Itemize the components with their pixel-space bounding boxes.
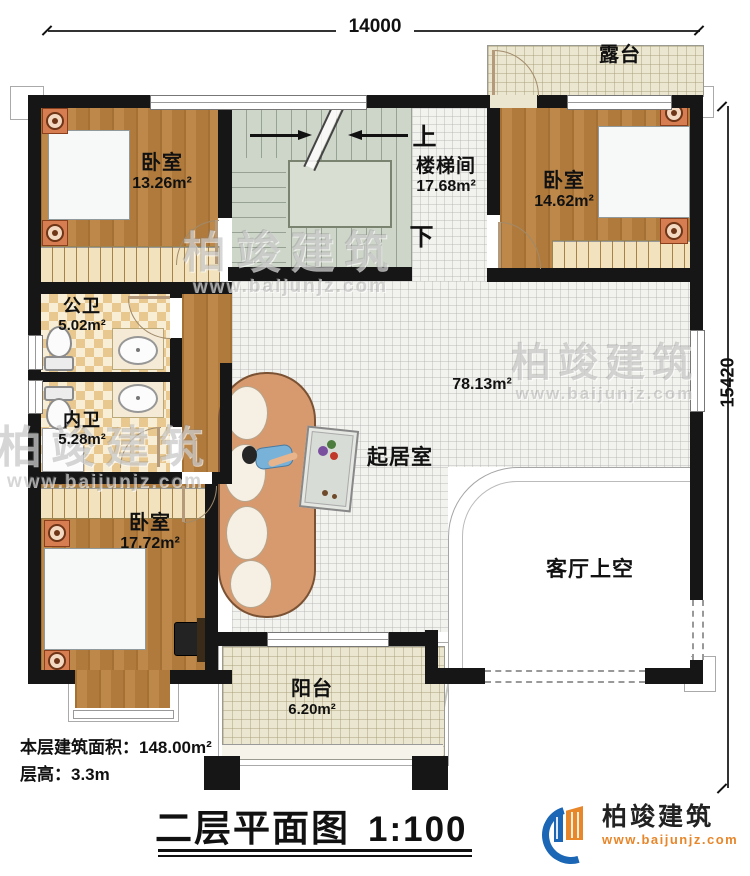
window xyxy=(690,330,705,412)
room-label-bedroom-tl: 卧室 13.26m² xyxy=(112,152,212,193)
wall-segment xyxy=(170,338,182,427)
floor-plan: 14000 15420 露台 xyxy=(0,0,750,876)
wall-segment xyxy=(220,363,232,472)
door-leaf xyxy=(498,222,501,268)
dimension-tick xyxy=(717,101,728,112)
floor-height-label: 层高： xyxy=(20,765,71,784)
living-area-label: 78.13m² xyxy=(440,376,524,394)
sofa-cushion xyxy=(226,506,268,560)
dimension-line-right xyxy=(727,106,729,788)
brand-logo-icon xyxy=(540,798,596,858)
sink-icon xyxy=(118,336,158,365)
stair-arrow-icon xyxy=(298,130,312,140)
title-underline xyxy=(158,855,472,857)
person-head xyxy=(242,446,257,464)
room-label-bath-public: 公卫 5.02m² xyxy=(42,296,122,334)
stair-arrow-icon xyxy=(348,130,362,140)
room-label-bedroom-tr: 卧室 14.62m² xyxy=(514,170,614,211)
wall-segment xyxy=(28,95,41,335)
logo-window-slit xyxy=(571,812,573,838)
room-label-terrace: 露台 xyxy=(580,44,660,67)
wall-segment xyxy=(28,282,232,294)
room-name: 卧室 xyxy=(514,170,614,193)
bay-window-floor xyxy=(75,670,170,708)
flower-icon xyxy=(318,446,328,456)
stair-down-label: 下 xyxy=(405,224,439,252)
bed-double-icon xyxy=(44,548,146,650)
room-area: 5.02m² xyxy=(42,317,122,334)
floor-area-value: 148.00m² xyxy=(139,738,212,757)
coffee-table-icon xyxy=(299,426,359,513)
balcony-column xyxy=(204,756,240,790)
room-name: 公卫 xyxy=(42,296,122,317)
room-area: 13.26m² xyxy=(112,175,212,193)
room-name: 楼梯间 xyxy=(398,156,494,178)
window-sliding xyxy=(692,600,704,660)
dimension-top-label: 14000 xyxy=(336,16,414,38)
floor-height-note: 层高：3.3m xyxy=(20,760,110,785)
room-area: 5.28m² xyxy=(42,431,122,448)
room-area: 17.72m² xyxy=(100,535,200,553)
dimension-right-label: 15420 xyxy=(718,343,739,423)
wall-segment xyxy=(28,95,150,108)
wall-segment xyxy=(387,632,425,646)
toilet-tank xyxy=(44,356,74,371)
nightstand-icon xyxy=(42,220,68,246)
wall-segment xyxy=(228,267,412,281)
balcony-column xyxy=(412,756,448,790)
wall-segment xyxy=(218,632,267,646)
wardrobe-icon xyxy=(552,240,692,270)
nightstand-icon xyxy=(660,218,688,244)
wall-segment xyxy=(28,472,182,484)
stair-up-label: 上 xyxy=(408,124,442,152)
wall-segment xyxy=(170,670,232,684)
room-label-living: 起居室 xyxy=(352,446,448,470)
stair-return-flight xyxy=(232,158,286,267)
floor-area-note: 本层建筑面积：148.00m² xyxy=(20,733,212,758)
room-label-balcony: 阳台 6.20m² xyxy=(260,678,364,718)
sofa-cushion xyxy=(226,386,268,440)
logo-window-slit xyxy=(556,817,558,839)
terrace-door-gap xyxy=(490,95,537,108)
window xyxy=(28,380,43,414)
wall-segment xyxy=(537,95,567,108)
wall-segment xyxy=(218,108,232,218)
room-name: 卧室 xyxy=(100,512,200,535)
room-name: 阳台 xyxy=(260,678,364,701)
door-leaf xyxy=(215,220,218,264)
nightstand-icon xyxy=(44,650,70,672)
nightstand-icon xyxy=(42,108,68,134)
room-label-void: 客厅上空 xyxy=(525,558,655,582)
drawing-title: 二层平面图1:100 xyxy=(155,798,468,852)
balcony-rail xyxy=(222,744,443,759)
window xyxy=(567,95,672,110)
wall-segment xyxy=(28,670,75,684)
wall-segment xyxy=(170,282,182,298)
wall-segment xyxy=(425,668,485,684)
floor-area-label: 本层建筑面积： xyxy=(20,738,139,757)
brand-name: 柏竣建筑 xyxy=(602,804,738,832)
window-sliding xyxy=(485,670,645,683)
terrace-door-leaf xyxy=(492,50,495,95)
wall-segment xyxy=(690,410,703,600)
drawing-title-text: 二层平面图 xyxy=(155,808,350,849)
brand-text: 柏竣建筑 www.baijunjz.com xyxy=(602,804,738,847)
wall-segment xyxy=(487,268,702,282)
sofa-cushion xyxy=(230,560,272,608)
window xyxy=(150,95,367,110)
stair-landing xyxy=(288,160,392,228)
table-dot xyxy=(322,490,328,496)
room-name: 内卫 xyxy=(42,410,122,431)
sink-icon xyxy=(118,384,158,413)
drawing-scale: 1:100 xyxy=(368,810,468,849)
stair-direction-line xyxy=(250,134,298,137)
wall-segment xyxy=(645,668,702,684)
table-dot xyxy=(332,494,337,499)
stair-direction-line xyxy=(362,134,408,137)
room-label-bedroom-bl: 卧室 17.72m² xyxy=(100,512,200,553)
nightstand-icon xyxy=(44,520,70,547)
floor-height-value: 3.3m xyxy=(71,765,110,784)
brand-logo: 柏竣建筑 www.baijunjz.com xyxy=(540,796,748,864)
wall-segment xyxy=(212,472,232,484)
room-label-stairwell: 楼梯间 17.68m² xyxy=(398,156,494,196)
room-area: 17.68m² xyxy=(398,178,494,196)
tv-stand-icon xyxy=(197,618,205,662)
wall-segment xyxy=(365,95,490,108)
title-underline xyxy=(158,849,472,852)
wall-segment xyxy=(425,630,438,670)
flower-icon xyxy=(327,440,336,449)
door-leaf xyxy=(157,427,160,467)
door-leaf xyxy=(128,296,170,299)
window xyxy=(28,335,43,370)
wall-segment xyxy=(28,372,182,382)
wall-segment xyxy=(690,95,703,330)
logo-building-orange-icon xyxy=(566,806,583,840)
dimension-tick xyxy=(717,783,728,794)
room-area: 14.62m² xyxy=(514,193,614,211)
bay-window-sill xyxy=(73,710,174,719)
logo-window-slit xyxy=(577,812,579,838)
window xyxy=(267,632,389,647)
wall-segment xyxy=(28,412,41,684)
room-name: 卧室 xyxy=(112,152,212,175)
flower-icon xyxy=(330,452,338,460)
room-area: 6.20m² xyxy=(260,701,364,718)
brand-url: www.baijunjz.com xyxy=(602,832,738,847)
room-label-bath-inner: 内卫 5.28m² xyxy=(42,410,122,448)
